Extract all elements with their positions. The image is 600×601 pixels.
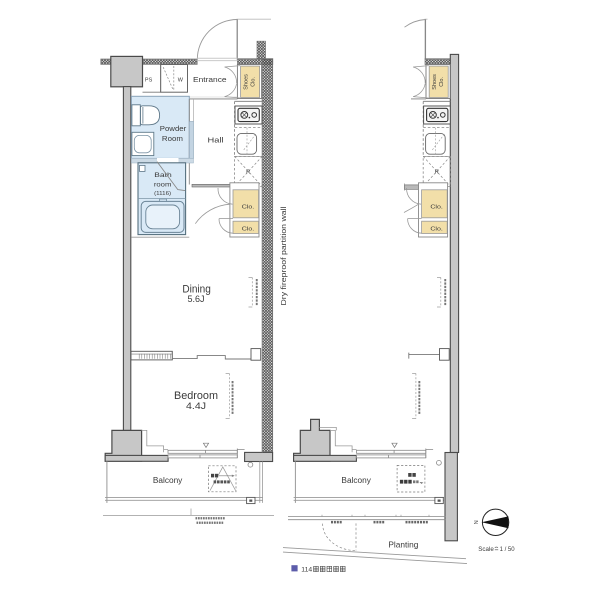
svg-text:114: 114	[301, 567, 312, 574]
svg-text:R: R	[435, 170, 439, 176]
svg-text:(1116): (1116)	[154, 191, 171, 197]
svg-text:Balcony: Balcony	[153, 476, 183, 485]
svg-text:Planting: Planting	[388, 540, 418, 549]
svg-text:Powder: Powder	[160, 126, 187, 133]
svg-text:Balcony: Balcony	[341, 476, 371, 485]
svg-text:Clo.: Clo.	[430, 226, 443, 232]
svg-text:Clo.: Clo.	[250, 77, 256, 87]
svg-text:Bath: Bath	[154, 172, 172, 179]
svg-text:Dry fireproof partition wall: Dry fireproof partition wall	[279, 206, 288, 305]
svg-text:Clo.: Clo.	[242, 226, 255, 232]
svg-text:N: N	[474, 520, 480, 524]
svg-text:Hall: Hall	[208, 138, 225, 145]
svg-text:PS: PS	[145, 77, 153, 83]
svg-text:Clo.: Clo.	[430, 204, 443, 210]
svg-text:Shoes: Shoes	[432, 74, 438, 90]
svg-text:Entrance: Entrance	[193, 75, 227, 84]
svg-text:5.6J: 5.6J	[188, 294, 205, 304]
svg-text:R: R	[246, 170, 250, 176]
svg-text:room: room	[154, 181, 172, 188]
svg-text:4.4J: 4.4J	[186, 401, 206, 411]
svg-text:Room: Room	[162, 136, 183, 143]
svg-text:Clo.: Clo.	[439, 77, 445, 87]
svg-text:Clo.: Clo.	[242, 204, 255, 210]
svg-text:Scale: Scale	[478, 546, 494, 553]
svg-text:Shoes: Shoes	[244, 74, 250, 90]
svg-text:1 / 50: 1 / 50	[500, 547, 516, 553]
svg-text:W: W	[178, 77, 184, 83]
